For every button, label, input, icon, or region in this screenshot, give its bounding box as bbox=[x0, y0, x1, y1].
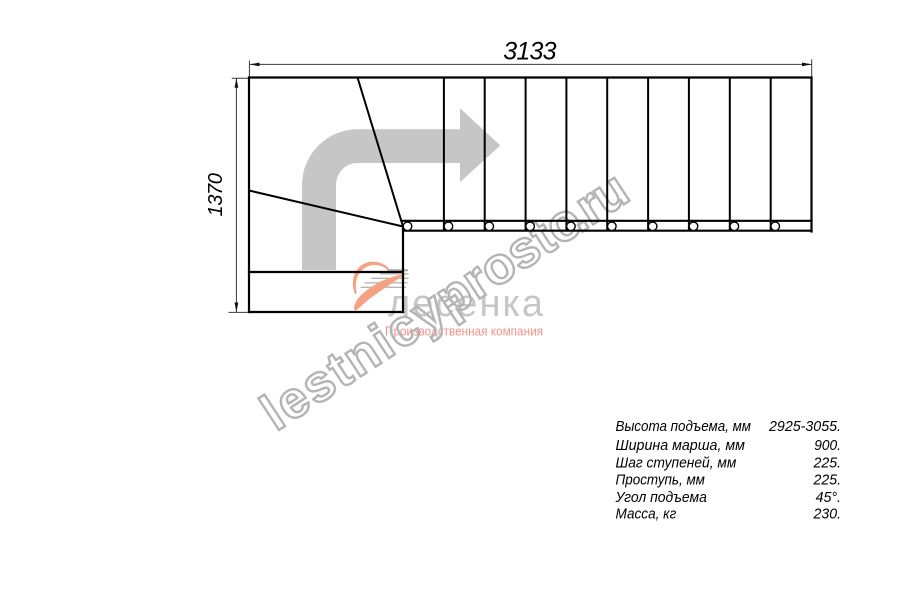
svg-text:Шаг ступеней, мм: Шаг ступеней, мм bbox=[616, 455, 737, 472]
svg-text:Масса, кг: Масса, кг bbox=[616, 506, 677, 523]
svg-text:3133: 3133 bbox=[503, 38, 556, 66]
svg-text:Высота подъема, мм: Высота подъема, мм bbox=[616, 418, 752, 435]
svg-text:45°.: 45°. bbox=[816, 489, 841, 506]
svg-text:225.: 225. bbox=[813, 455, 841, 472]
svg-text:1370: 1370 bbox=[205, 173, 227, 216]
svg-text:Проступь, мм: Проступь, мм bbox=[616, 472, 705, 489]
svg-text:2925-3055.: 2925-3055. bbox=[768, 418, 841, 435]
svg-text:900.: 900. bbox=[814, 437, 841, 454]
svg-text:230.: 230. bbox=[813, 506, 841, 523]
svg-text:Ширина марша, мм: Ширина марша, мм bbox=[616, 437, 745, 454]
svg-text:225.: 225. bbox=[813, 472, 841, 489]
svg-text:Угол подъема: Угол подъема bbox=[615, 489, 707, 506]
